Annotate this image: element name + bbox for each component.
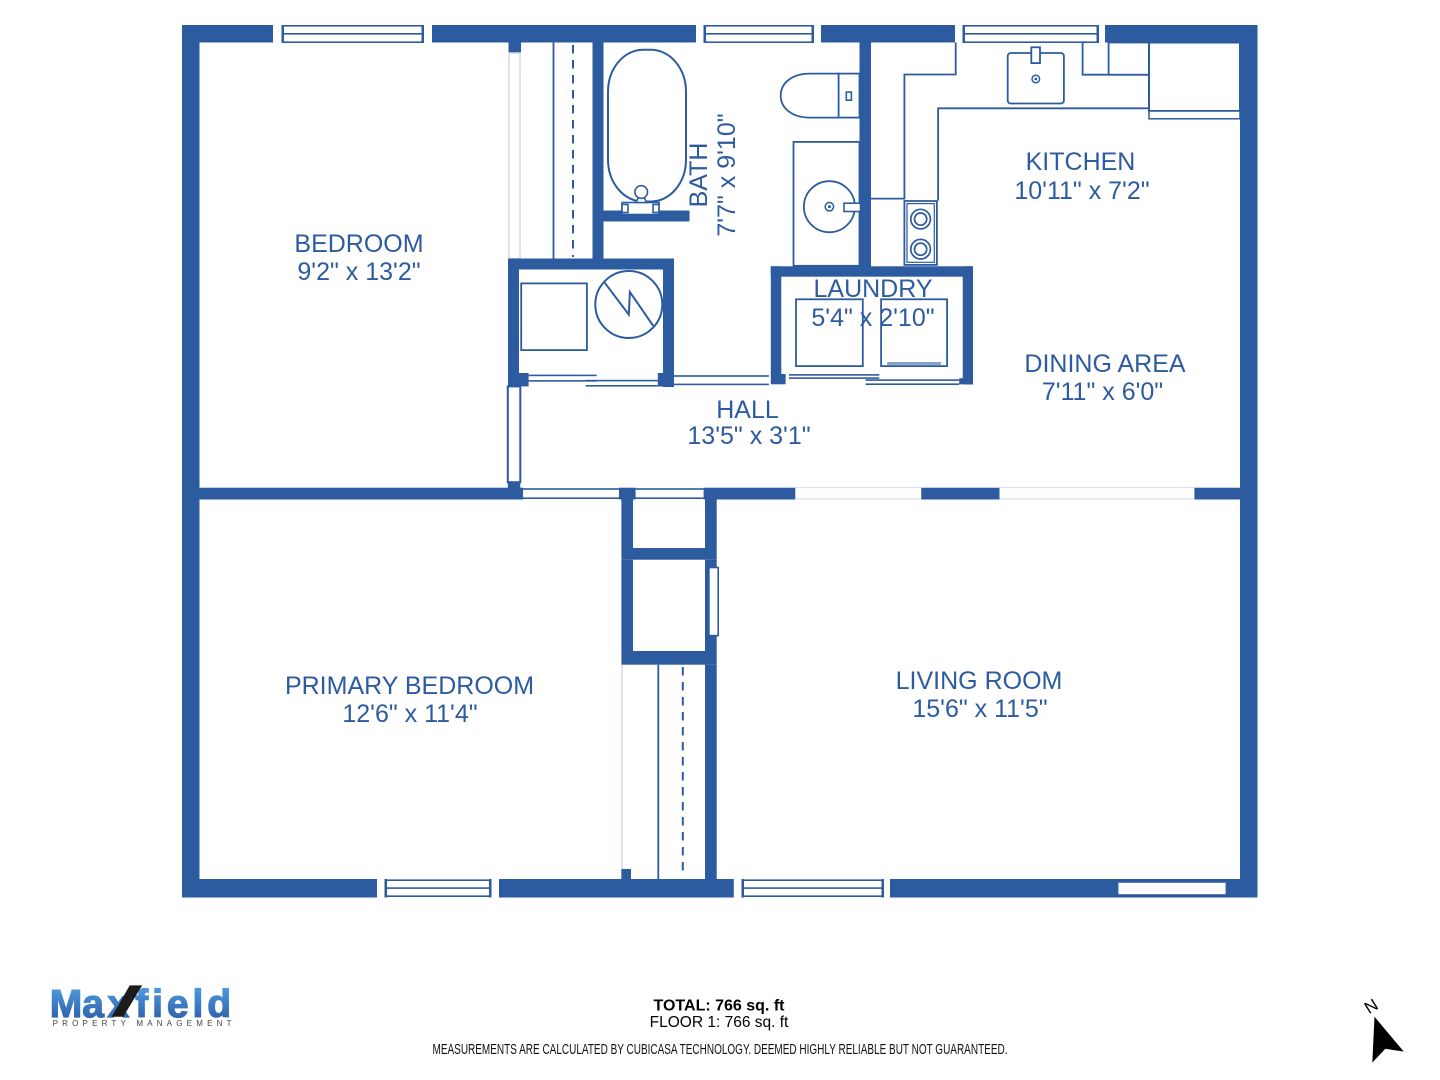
svg-text:12'6" x 11'4": 12'6" x 11'4" <box>342 700 477 728</box>
svg-text:LIVING ROOM: LIVING ROOM <box>896 667 1063 695</box>
svg-text:10'11" x 7'2": 10'11" x 7'2" <box>1014 177 1149 205</box>
svg-text:LAUNDRY: LAUNDRY <box>813 275 932 303</box>
svg-text:7'11" x 6'0": 7'11" x 6'0" <box>1042 378 1163 406</box>
svg-text:15'6" x 11'5": 15'6" x 11'5" <box>912 695 1047 723</box>
svg-text:PRIMARY BEDROOM: PRIMARY BEDROOM <box>285 672 534 700</box>
svg-text:FLOOR 1: 766 sq. ft: FLOOR 1: 766 sq. ft <box>650 1014 789 1031</box>
svg-text:TOTAL: 766 sq. ft: TOTAL: 766 sq. ft <box>654 998 786 1015</box>
svg-text:BEDROOM: BEDROOM <box>294 230 423 258</box>
svg-text:MEASUREMENTS ARE CALCULATED BY: MEASUREMENTS ARE CALCULATED BY CUBICASA … <box>433 1041 1008 1058</box>
svg-text:9'2" x 13'2": 9'2" x 13'2" <box>297 258 420 286</box>
svg-text:7'7" x 9'10": 7'7" x 9'10" <box>713 113 741 236</box>
svg-text:KITCHEN: KITCHEN <box>1026 148 1136 176</box>
svg-text:DINING AREA: DINING AREA <box>1024 350 1185 378</box>
svg-text:HALL: HALL <box>716 396 779 424</box>
svg-text:PROPERTY MANAGEMENT: PROPERTY MANAGEMENT <box>53 1019 236 1028</box>
svg-text:BATH: BATH <box>685 143 713 208</box>
svg-text:13'5" x 3'1": 13'5" x 3'1" <box>687 422 810 450</box>
svg-text:5'4" x 2'10": 5'4" x 2'10" <box>811 304 934 332</box>
